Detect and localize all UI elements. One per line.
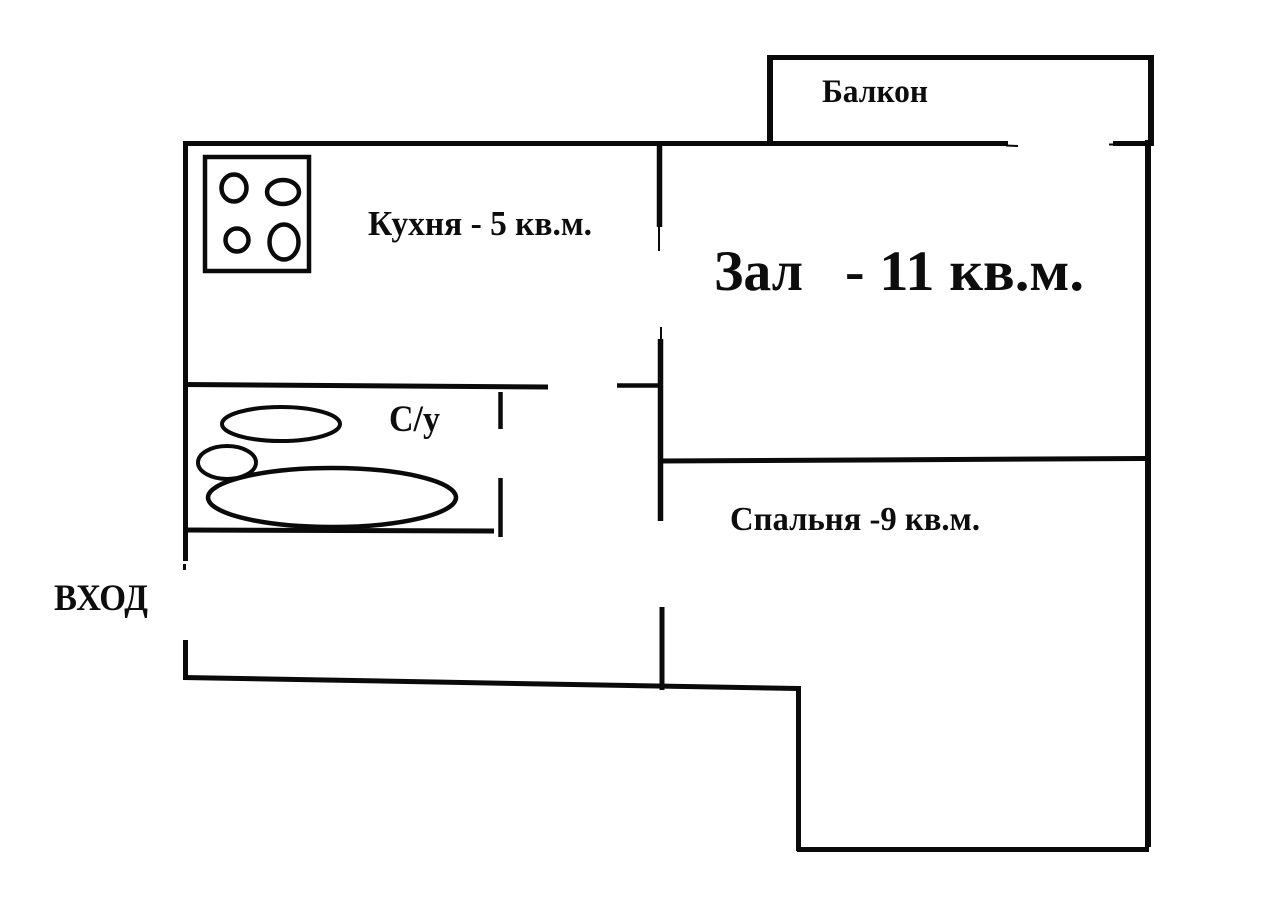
svg-text:Спальня -9 кв.м.: Спальня -9 кв.м. bbox=[730, 501, 980, 538]
svg-text:С/у: С/у bbox=[389, 399, 440, 440]
svg-text:ВХОД: ВХОД bbox=[54, 578, 148, 619]
svg-text:Зал- 11 кв.м.: Зал- 11 кв.м. bbox=[714, 240, 1084, 303]
svg-text:Балкон: Балкон bbox=[822, 74, 928, 110]
svg-text:Кухня - 5 кв.м.: Кухня - 5 кв.м. bbox=[368, 204, 592, 243]
